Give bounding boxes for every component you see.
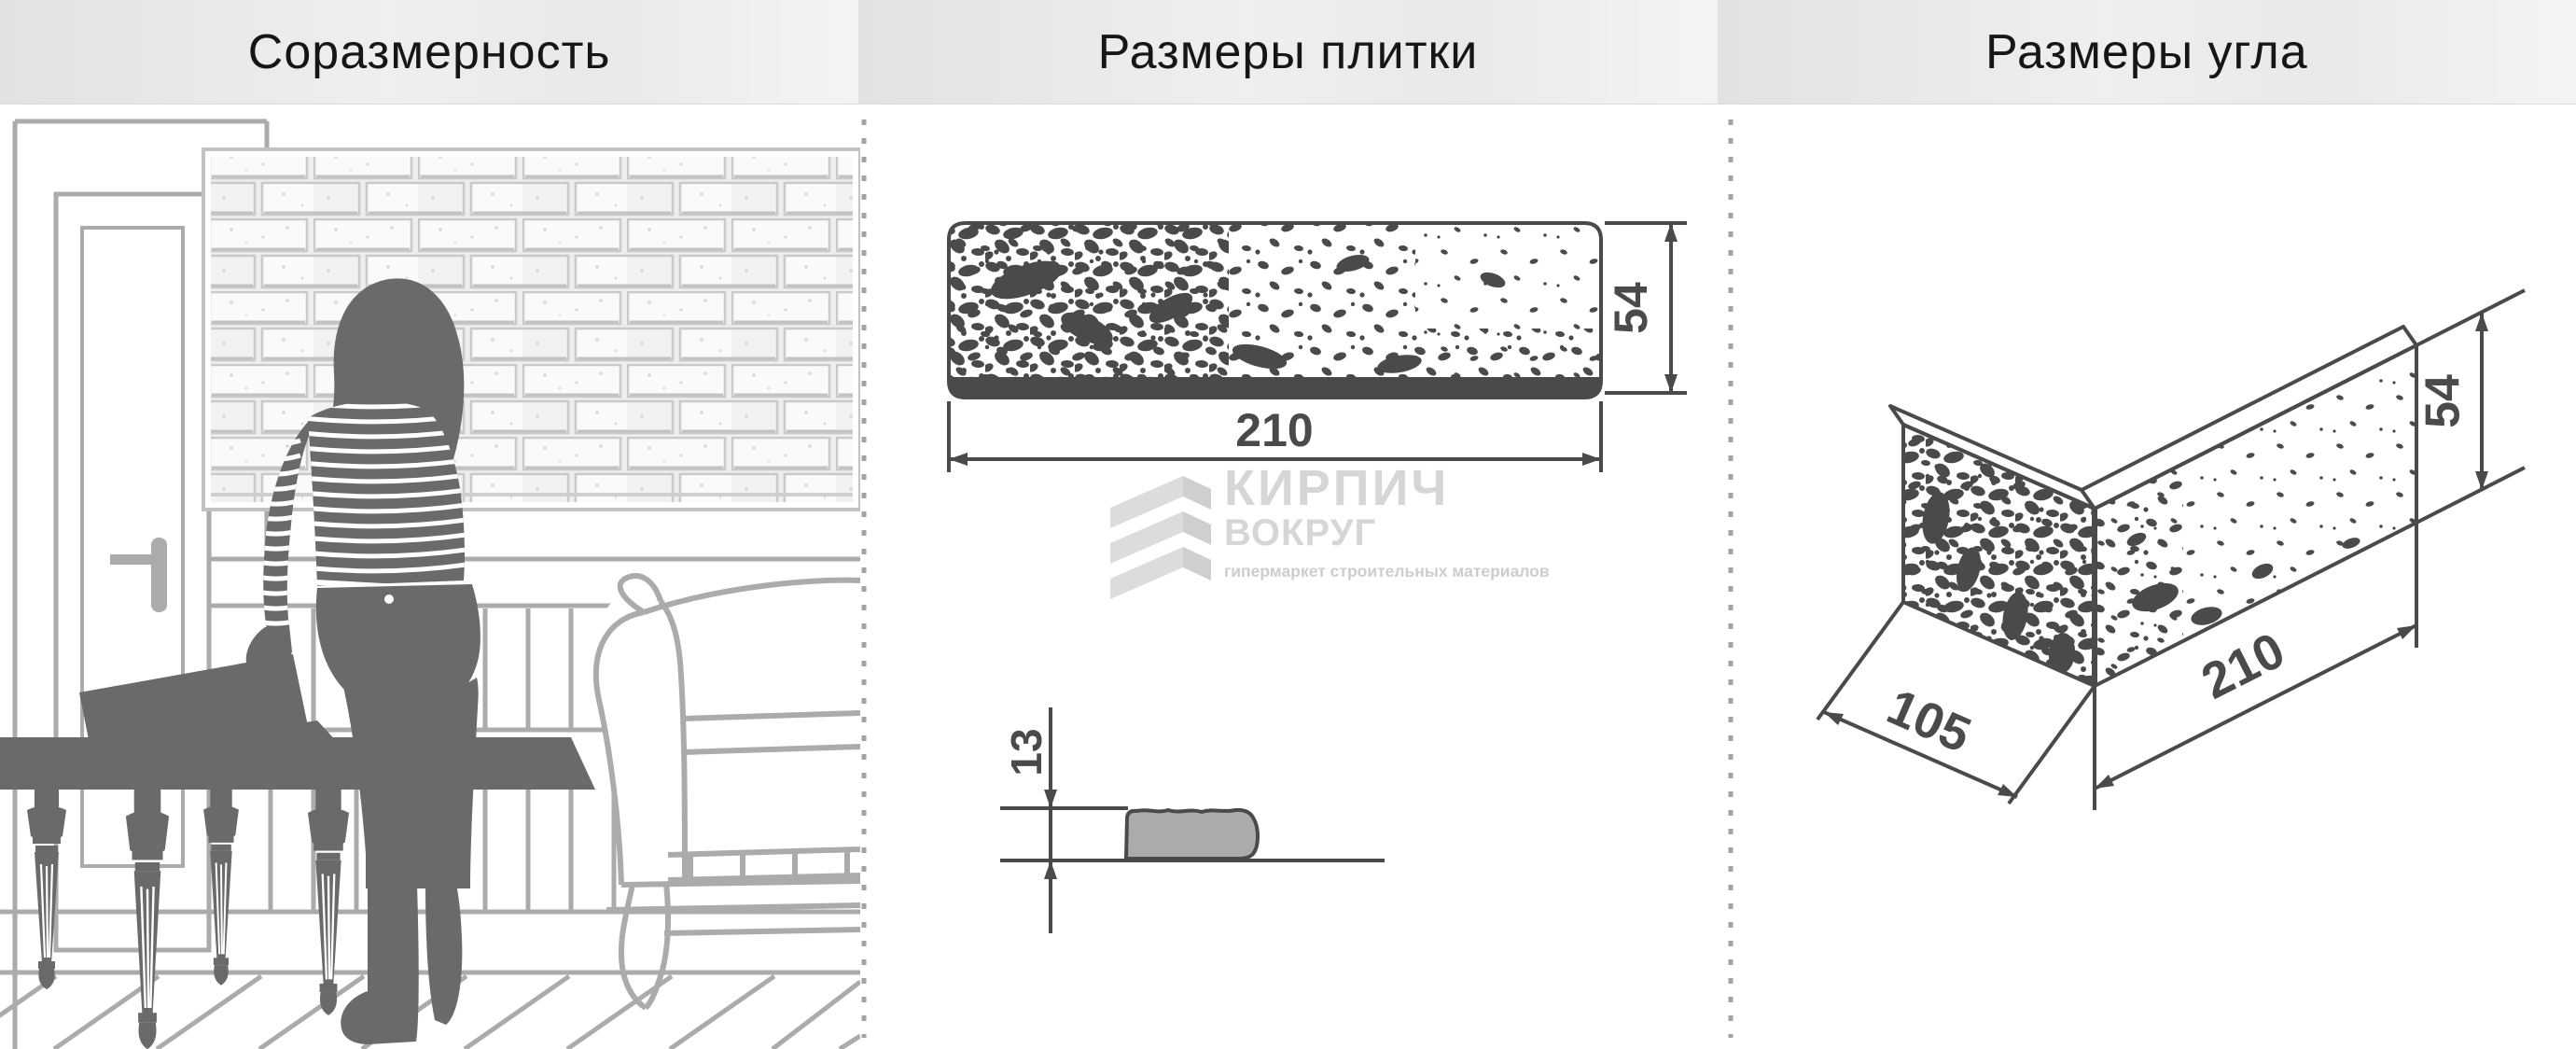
- sofa: [592, 569, 860, 1008]
- corner-dimensions-diagram: 54 210 105: [1817, 290, 2525, 810]
- button: [384, 594, 394, 604]
- tile-thickness-diagram: 13: [1000, 707, 1385, 933]
- tile-face: [949, 223, 1601, 398]
- logo-line2: ВОКРУГ: [1224, 512, 1376, 553]
- kirpich-vokrug-logo: КИРПИЧ ВОКРУГ гипермаркет строительных м…: [1110, 460, 1550, 599]
- leg-straight: [341, 885, 418, 1044]
- kirpich-vokrug-logo-icon: [1110, 476, 1211, 599]
- logo-line1: КИРПИЧ: [1224, 460, 1449, 516]
- tile-section-profile: [1126, 810, 1258, 859]
- interior-scale-illustration: [0, 121, 860, 1049]
- corner-height-label: 54: [2416, 374, 2471, 428]
- thighs: [343, 678, 479, 888]
- product-dimensions-sheet: Соразмерность Размеры плитки Размеры угл…: [0, 0, 2576, 1049]
- corner-piece: [1890, 327, 2416, 700]
- tile-thickness-label: 13: [1002, 728, 1051, 776]
- tile-dimensions-diagram: 210 54 КИРПИЧ ВОКРУГ: [949, 223, 1687, 933]
- tile-height-label: 54: [1605, 282, 1657, 334]
- hand: [246, 625, 292, 671]
- table: [0, 654, 595, 1049]
- tile-width-label: 210: [1235, 404, 1313, 456]
- diagram-canvas: 210 54 КИРПИЧ ВОКРУГ: [0, 0, 2576, 1049]
- corner-depth-label: 105: [1879, 678, 1979, 763]
- logo-tagline: гипермаркет строительных материалов: [1224, 562, 1550, 580]
